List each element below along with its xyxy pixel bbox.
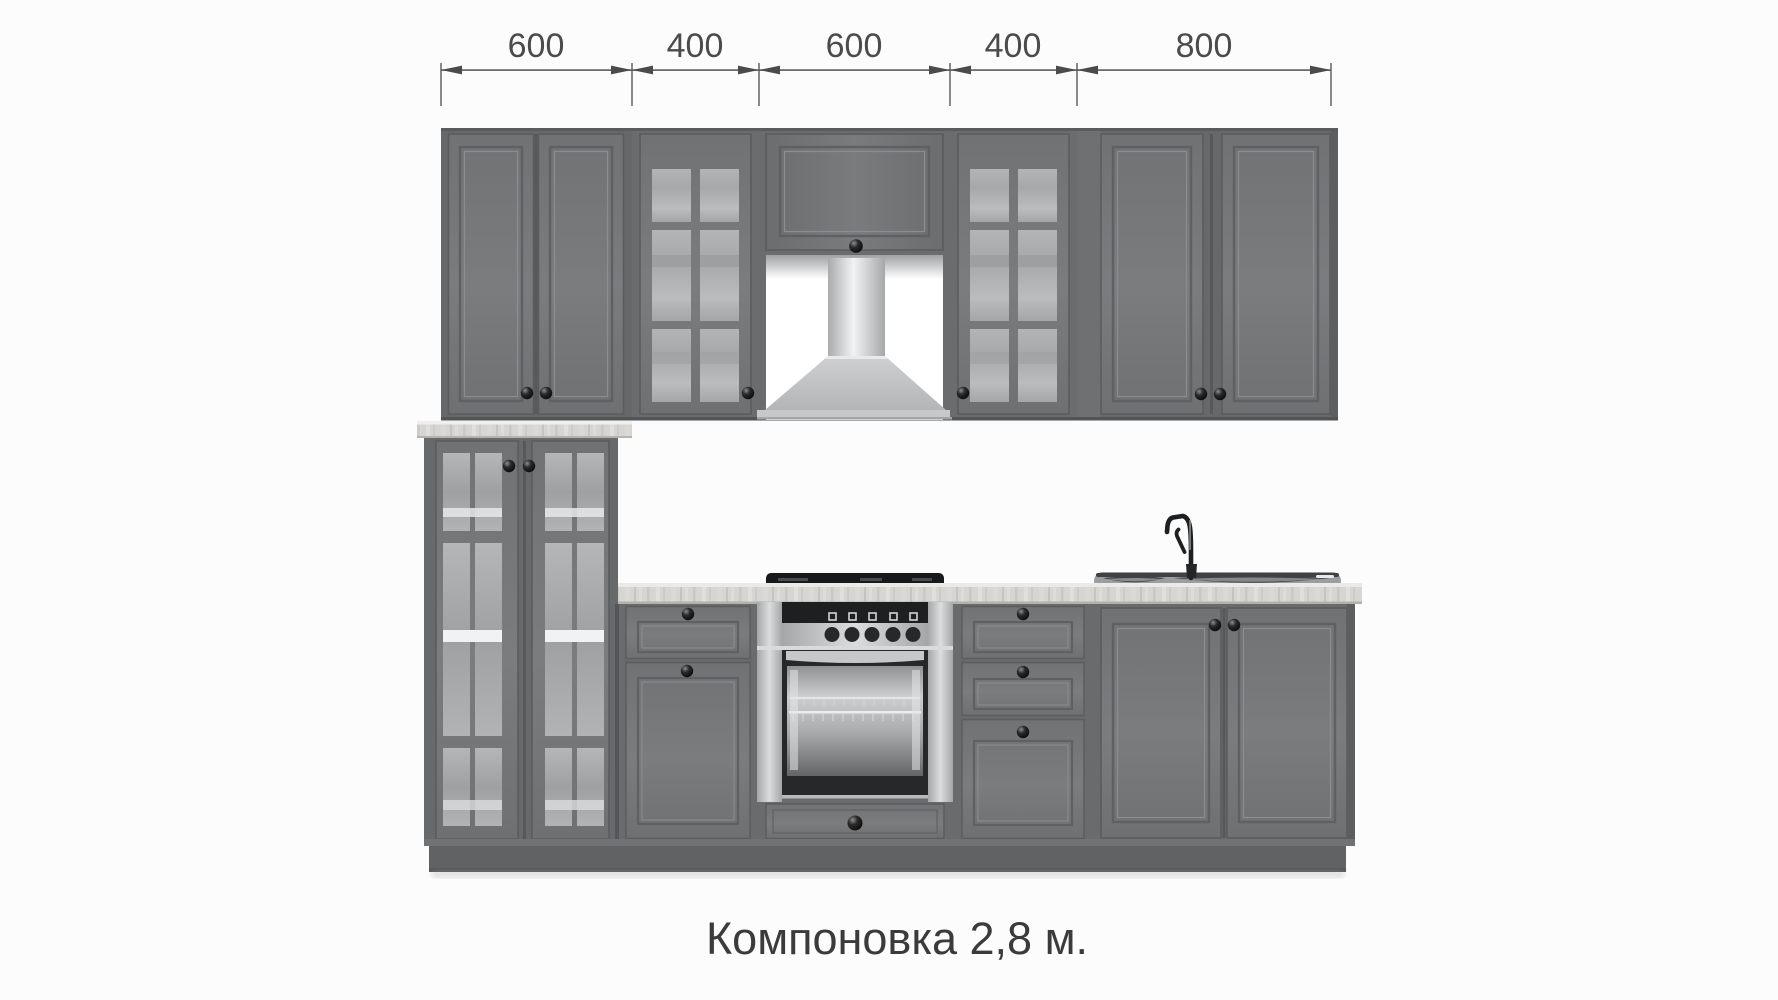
svg-text:600: 600 — [826, 27, 883, 65]
svg-text:Компоновка 2,8 м.: Компоновка 2,8 м. — [706, 913, 1088, 964]
svg-text:800: 800 — [1176, 27, 1233, 65]
svg-text:400: 400 — [667, 27, 724, 65]
svg-text:600: 600 — [508, 27, 565, 65]
svg-text:400: 400 — [985, 27, 1042, 65]
